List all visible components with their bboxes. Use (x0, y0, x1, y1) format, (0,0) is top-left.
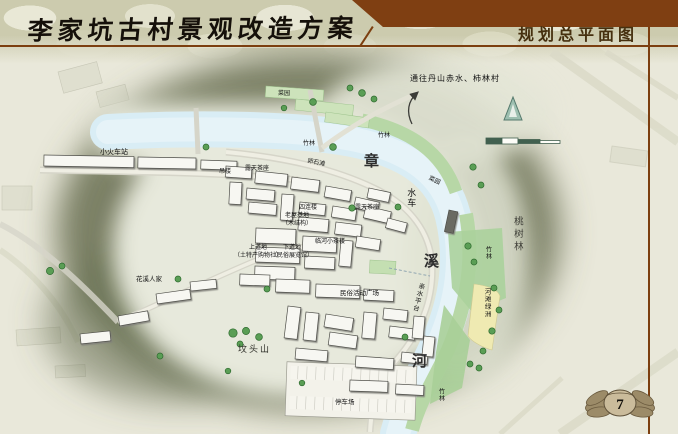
river-name-char: 河 (412, 350, 427, 371)
bamboo-label: 竹林 (436, 388, 444, 402)
section-title: 规划总平面图 (470, 27, 638, 45)
waterwheel-label: 水车 (405, 188, 416, 208)
bamboo-label: 竹林 (378, 133, 390, 141)
peach-grove-label: 桃树林 (511, 216, 523, 254)
master-plan-map (0, 0, 678, 434)
train-station-label: 小火车站 (100, 149, 128, 158)
bamboo-label: 竹林 (483, 246, 491, 260)
river-name-char: 章 (364, 150, 379, 171)
folk-plaza-label: 民俗活动广场 (340, 290, 379, 298)
fentou-hill-label: 坟头山 (238, 344, 271, 355)
tea-terrace-label: 露天茶座 (245, 166, 269, 174)
old-house-site-label: 老屋基地 （木结构） (282, 213, 312, 228)
row-houses-label: 四连楼 (299, 205, 317, 213)
garden-label: 菜园 (278, 91, 290, 99)
route-note-label: 通往丹山赤水、柿林村 (410, 74, 500, 84)
right-margin-line (648, 27, 650, 434)
page-number: 7 (616, 397, 624, 413)
tea-terrace-label: 露天茶座 (355, 205, 379, 213)
beach-oasis-label: 河滩绿洲 (482, 288, 490, 318)
bamboo-label: 竹林 (303, 141, 315, 149)
page-number-emblem: 7 (584, 383, 656, 425)
header-brown-panel (352, 0, 678, 27)
huaxi-homes-label: 花溪人家 (136, 276, 162, 284)
hanging-tower-label: 吊楼 (219, 169, 231, 177)
page-title: 李家坑古村景观改造方案 (26, 9, 360, 48)
teahouse-label: 临河小茶楼 (315, 239, 345, 247)
presentation-slide: 通往丹山赤水、柿林村 小火车站 菜园 竹林 竹林 吊楼 露天茶座 卵石滩 露天茶… (0, 0, 678, 434)
parking-label: 停车场 (335, 399, 355, 407)
river-name-char: 溪 (424, 250, 439, 271)
lower-court-label: 下道地 （民俗展览馆） (271, 245, 313, 260)
